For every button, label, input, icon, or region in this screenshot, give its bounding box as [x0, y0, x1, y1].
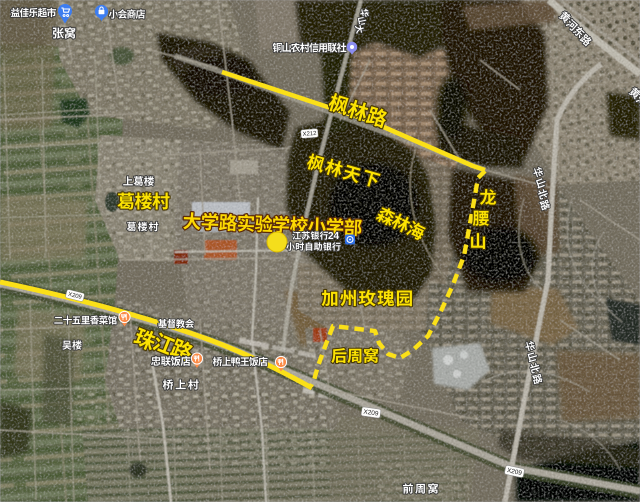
svg-text:24: 24	[328, 231, 340, 242]
svg-text:X212: X212	[302, 131, 316, 138]
